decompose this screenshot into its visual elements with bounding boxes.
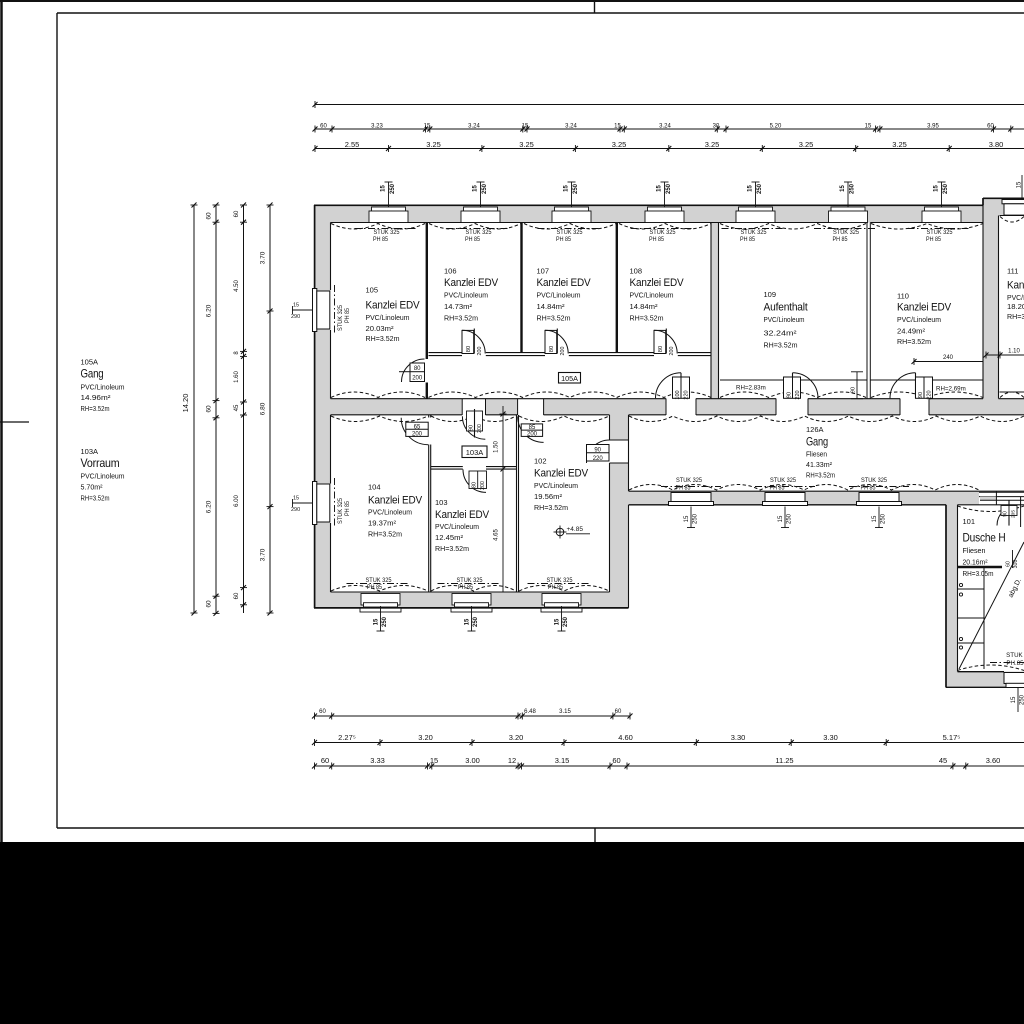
svg-text:15: 15 xyxy=(934,185,940,192)
svg-text:250: 250 xyxy=(787,513,793,524)
svg-text:220: 220 xyxy=(795,390,801,399)
svg-text:PVC/Linoleum: PVC/Linoleum xyxy=(897,315,941,324)
svg-text:20.16m²: 20.16m² xyxy=(963,558,988,567)
svg-text:14.84m²: 14.84m² xyxy=(537,302,566,311)
svg-text:3.25: 3.25 xyxy=(612,140,627,149)
svg-text:+4.85: +4.85 xyxy=(567,526,584,533)
svg-text:STUK 325: STUK 325 xyxy=(650,229,677,236)
svg-text:Gang: Gang xyxy=(81,367,104,381)
svg-text:Gang: Gang xyxy=(806,435,828,449)
svg-text:RH=3.52m: RH=3.52m xyxy=(366,334,400,343)
svg-text:250: 250 xyxy=(757,183,763,194)
svg-text:RH=3.52m: RH=3.52m xyxy=(435,544,469,553)
svg-text:RH=3.52m: RH=3.52m xyxy=(368,530,402,539)
svg-text:80: 80 xyxy=(414,366,421,372)
svg-text:60: 60 xyxy=(1006,561,1012,567)
svg-text:250: 250 xyxy=(1020,694,1024,705)
svg-text:STUK 325: STUK 325 xyxy=(557,229,584,236)
svg-text:1.10: 1.10 xyxy=(1008,349,1020,355)
svg-text:15: 15 xyxy=(374,618,380,625)
svg-text:250: 250 xyxy=(473,616,479,627)
svg-text:PH 85: PH 85 xyxy=(556,236,571,243)
svg-text:RH=3.52m: RH=3.52m xyxy=(1007,312,1024,321)
svg-text:290: 290 xyxy=(291,314,300,320)
svg-text:STUK 325: STUK 325 xyxy=(366,577,393,584)
svg-text:6.00: 6.00 xyxy=(234,495,240,507)
svg-text:PVC/Linoleum: PVC/Linoleum xyxy=(764,315,805,324)
svg-text:RH=3.52m: RH=3.52m xyxy=(897,337,931,346)
svg-text:STUK 325: STUK 325 xyxy=(833,229,860,236)
svg-text:15: 15 xyxy=(424,124,431,130)
svg-text:PH 85: PH 85 xyxy=(344,308,351,323)
svg-text:15: 15 xyxy=(293,303,299,309)
svg-text:6.48: 6.48 xyxy=(524,709,536,715)
svg-text:111: 111 xyxy=(1007,267,1018,276)
svg-text:60: 60 xyxy=(612,756,620,765)
svg-text:PH 85: PH 85 xyxy=(926,236,941,243)
svg-text:220: 220 xyxy=(927,390,933,399)
svg-text:1.60: 1.60 xyxy=(234,371,240,383)
svg-text:Kanzlei EDV: Kanzlei EDV xyxy=(1007,280,1024,292)
svg-text:Fliesen: Fliesen xyxy=(963,546,986,555)
svg-text:Vorraum: Vorraum xyxy=(81,456,120,470)
svg-text:109: 109 xyxy=(764,290,777,299)
svg-text:5.17⁵: 5.17⁵ xyxy=(943,733,961,742)
svg-text:RH=3.52m: RH=3.52m xyxy=(537,314,571,323)
svg-text:PH 85: PH 85 xyxy=(344,501,351,516)
svg-text:200: 200 xyxy=(477,424,483,433)
svg-text:Kanzlei EDV: Kanzlei EDV xyxy=(435,509,490,521)
svg-text:105A: 105A xyxy=(561,374,578,383)
svg-text:19.37m²: 19.37m² xyxy=(368,519,397,528)
svg-text:STUK 325: STUK 325 xyxy=(770,477,797,484)
svg-text:105A: 105A xyxy=(81,358,99,367)
svg-text:PVC/Linoleum: PVC/Linoleum xyxy=(366,313,410,322)
svg-text:PVC/Linoleum: PVC/Linoleum xyxy=(444,291,488,300)
svg-text:105: 105 xyxy=(366,286,379,295)
svg-text:3.23: 3.23 xyxy=(371,124,383,130)
svg-text:STUK 325: STUK 325 xyxy=(741,229,768,236)
svg-text:250: 250 xyxy=(693,513,699,524)
svg-text:PVC/Linoleum: PVC/Linoleum xyxy=(81,472,125,481)
svg-text:11.25: 11.25 xyxy=(775,756,793,765)
svg-text:110: 110 xyxy=(897,292,909,301)
svg-text:4.60: 4.60 xyxy=(618,733,633,742)
svg-text:15: 15 xyxy=(1017,181,1023,188)
svg-text:STUK 325: STUK 325 xyxy=(466,229,493,236)
svg-text:250: 250 xyxy=(943,183,949,194)
svg-text:Fliesen: Fliesen xyxy=(806,450,827,459)
svg-text:15: 15 xyxy=(1011,696,1017,703)
svg-text:PH 85: PH 85 xyxy=(465,236,480,243)
svg-text:60: 60 xyxy=(206,600,213,608)
svg-text:4.50: 4.50 xyxy=(234,280,240,292)
svg-text:15: 15 xyxy=(293,496,299,502)
svg-text:250: 250 xyxy=(666,183,672,194)
svg-text:205: 205 xyxy=(1011,510,1017,518)
svg-text:19.56m²: 19.56m² xyxy=(534,492,563,501)
svg-text:Dusche H: Dusche H xyxy=(963,531,1006,545)
svg-text:85: 85 xyxy=(529,425,536,431)
svg-text:3.70: 3.70 xyxy=(260,548,267,561)
svg-text:60: 60 xyxy=(321,756,329,765)
svg-text:60: 60 xyxy=(234,592,240,599)
svg-text:45: 45 xyxy=(234,404,240,411)
svg-text:6.80: 6.80 xyxy=(260,402,267,415)
svg-text:20.03m²: 20.03m² xyxy=(366,324,395,333)
svg-text:60: 60 xyxy=(206,212,213,220)
svg-text:PH 85: PH 85 xyxy=(367,584,382,591)
svg-text:3.30: 3.30 xyxy=(823,733,838,742)
svg-text:32.24m²: 32.24m² xyxy=(764,329,798,338)
svg-text:STUK 325: STUK 325 xyxy=(337,304,344,331)
svg-text:6.20: 6.20 xyxy=(206,304,213,317)
svg-text:15: 15 xyxy=(614,124,621,130)
svg-text:250: 250 xyxy=(881,513,887,524)
svg-text:Kanzlei EDV: Kanzlei EDV xyxy=(897,302,952,314)
svg-text:106: 106 xyxy=(444,267,457,276)
svg-text:RH=3.52m: RH=3.52m xyxy=(444,314,478,323)
svg-text:15: 15 xyxy=(748,185,754,192)
svg-text:240: 240 xyxy=(943,355,954,361)
svg-text:3.20: 3.20 xyxy=(418,733,433,742)
svg-text:PVC/Linoleum: PVC/Linoleum xyxy=(368,508,412,517)
svg-text:PVC/Linoleum: PVC/Linoleum xyxy=(630,291,674,300)
svg-text:250: 250 xyxy=(563,616,569,627)
svg-text:PVC/Linoleum: PVC/Linoleum xyxy=(435,522,479,531)
svg-text:Kanzlei EDV: Kanzlei EDV xyxy=(368,495,423,507)
svg-text:60: 60 xyxy=(234,210,240,217)
svg-text:24.49m²: 24.49m² xyxy=(897,327,926,336)
svg-text:60: 60 xyxy=(206,405,213,413)
svg-text:14.20: 14.20 xyxy=(181,394,190,413)
svg-text:3.25: 3.25 xyxy=(705,140,720,149)
svg-text:15: 15 xyxy=(564,185,570,192)
svg-text:103A: 103A xyxy=(466,448,484,457)
svg-text:101: 101 xyxy=(963,517,976,526)
svg-text:5.20: 5.20 xyxy=(770,124,782,130)
svg-text:2.55: 2.55 xyxy=(345,140,360,149)
svg-text:3.30: 3.30 xyxy=(731,733,746,742)
svg-text:4.65: 4.65 xyxy=(494,529,500,541)
svg-text:PH 85: PH 85 xyxy=(458,584,473,591)
svg-text:PVC/Linoleum: PVC/Linoleum xyxy=(537,291,581,300)
svg-text:60: 60 xyxy=(615,709,622,715)
svg-text:RH=2.69m: RH=2.69m xyxy=(936,386,966,393)
svg-text:45: 45 xyxy=(939,756,947,765)
svg-text:15: 15 xyxy=(522,124,529,130)
svg-text:PH 85: PH 85 xyxy=(770,485,785,492)
svg-text:15: 15 xyxy=(684,515,690,522)
svg-text:PVC/Linoleum: PVC/Linoleum xyxy=(81,383,125,392)
svg-text:STUK 325: STUK 325 xyxy=(547,577,574,584)
svg-text:3.24: 3.24 xyxy=(468,124,480,130)
svg-text:60: 60 xyxy=(987,124,994,130)
svg-text:2.27⁵: 2.27⁵ xyxy=(338,733,356,742)
svg-text:15: 15 xyxy=(657,185,663,192)
svg-text:PH 85: PH 85 xyxy=(373,236,388,243)
svg-text:3.15: 3.15 xyxy=(559,709,571,715)
svg-text:Aufenthalt: Aufenthalt xyxy=(764,302,808,314)
svg-text:200: 200 xyxy=(527,432,538,438)
svg-text:5.70m²: 5.70m² xyxy=(81,483,104,492)
svg-text:200: 200 xyxy=(669,347,675,356)
svg-text:STUK 325: STUK 325 xyxy=(337,497,344,524)
svg-text:RH=3.52m: RH=3.52m xyxy=(806,471,835,480)
svg-text:3.24: 3.24 xyxy=(565,124,577,130)
svg-text:PH 85: PH 85 xyxy=(861,485,876,492)
svg-text:STUK 325: STUK 325 xyxy=(457,577,484,584)
svg-text:STUK 325: STUK 325 xyxy=(374,229,401,236)
svg-text:STUK 325: STUK 325 xyxy=(676,477,703,484)
svg-text:PH 85: PH 85 xyxy=(740,236,755,243)
svg-text:90: 90 xyxy=(851,387,857,393)
svg-text:12: 12 xyxy=(508,756,516,765)
svg-text:300: 300 xyxy=(1013,560,1019,569)
svg-text:108: 108 xyxy=(630,267,643,276)
svg-text:41.33m²: 41.33m² xyxy=(806,460,833,469)
svg-text:Kanzlei EDV: Kanzlei EDV xyxy=(444,277,499,289)
svg-text:220: 220 xyxy=(684,390,690,399)
svg-text:250: 250 xyxy=(390,183,396,194)
svg-text:220: 220 xyxy=(593,456,604,462)
svg-text:PH.85: PH.85 xyxy=(1006,660,1024,667)
svg-text:250: 250 xyxy=(482,183,488,194)
svg-text:90: 90 xyxy=(594,448,601,454)
svg-text:103A: 103A xyxy=(81,447,99,456)
svg-text:126A: 126A xyxy=(806,425,824,434)
svg-text:3.70: 3.70 xyxy=(260,251,267,264)
svg-text:15: 15 xyxy=(465,618,471,625)
svg-text:3.80: 3.80 xyxy=(989,140,1004,149)
svg-text:15: 15 xyxy=(872,515,878,522)
svg-text:80: 80 xyxy=(472,482,478,488)
svg-text:PVC/Linoleum: PVC/Linoleum xyxy=(534,481,578,490)
svg-text:15: 15 xyxy=(555,618,561,625)
svg-text:Kanzlei EDV: Kanzlei EDV xyxy=(537,277,592,289)
svg-text:3.15: 3.15 xyxy=(555,756,570,765)
svg-text:3.24: 3.24 xyxy=(659,124,671,130)
svg-text:PH 85: PH 85 xyxy=(676,485,691,492)
svg-text:65: 65 xyxy=(414,424,421,430)
svg-text:STUK 325: STUK 325 xyxy=(927,229,954,236)
svg-text:200: 200 xyxy=(412,376,423,382)
svg-text:18.20m²: 18.20m² xyxy=(1007,302,1024,311)
svg-text:12.45m²: 12.45m² xyxy=(435,533,464,542)
svg-text:15: 15 xyxy=(840,185,846,192)
svg-text:250: 250 xyxy=(573,183,579,194)
svg-text:RH=3.52m: RH=3.52m xyxy=(81,494,110,503)
svg-text:200: 200 xyxy=(560,347,566,356)
svg-text:RH=3.52m: RH=3.52m xyxy=(81,404,110,413)
svg-text:90: 90 xyxy=(787,392,793,398)
svg-text:290: 290 xyxy=(291,507,300,513)
svg-text:250: 250 xyxy=(382,616,388,627)
svg-text:107: 107 xyxy=(537,267,550,276)
svg-text:3.20: 3.20 xyxy=(509,733,524,742)
svg-text:104: 104 xyxy=(368,483,381,492)
svg-text:15: 15 xyxy=(473,185,479,192)
svg-text:1.50: 1.50 xyxy=(494,441,500,453)
svg-text:80: 80 xyxy=(549,346,555,352)
svg-text:PH 85: PH 85 xyxy=(833,236,848,243)
svg-text:STUK 3: STUK 3 xyxy=(1006,652,1024,659)
svg-text:3.25: 3.25 xyxy=(892,140,907,149)
svg-text:103: 103 xyxy=(435,498,448,507)
svg-text:Kanzlei EDV: Kanzlei EDV xyxy=(366,300,421,312)
svg-text:30: 30 xyxy=(713,124,720,130)
svg-text:14.84m²: 14.84m² xyxy=(630,302,659,311)
svg-text:60: 60 xyxy=(319,709,326,715)
svg-text:6.20: 6.20 xyxy=(206,500,213,513)
svg-text:100: 100 xyxy=(675,390,681,399)
svg-text:Kanzlei EDV: Kanzlei EDV xyxy=(630,277,685,289)
svg-text:15: 15 xyxy=(430,756,438,765)
svg-text:14.96m²: 14.96m² xyxy=(81,393,112,402)
svg-text:Kanzlei EDV: Kanzlei EDV xyxy=(534,468,589,480)
svg-text:15: 15 xyxy=(381,185,387,192)
svg-text:3.25: 3.25 xyxy=(426,140,441,149)
svg-text:15: 15 xyxy=(778,515,784,522)
svg-text:3.00: 3.00 xyxy=(465,756,480,765)
svg-text:250: 250 xyxy=(850,183,856,194)
svg-text:3.33: 3.33 xyxy=(370,756,385,765)
svg-text:RH=3.52m: RH=3.52m xyxy=(534,503,568,512)
svg-text:14.73m²: 14.73m² xyxy=(444,302,473,311)
svg-text:200: 200 xyxy=(480,481,486,490)
svg-text:PH 85: PH 85 xyxy=(649,236,664,243)
svg-text:80: 80 xyxy=(466,346,472,352)
svg-text:102: 102 xyxy=(534,457,547,466)
svg-text:15: 15 xyxy=(865,124,872,130)
svg-text:80: 80 xyxy=(658,346,664,352)
svg-text:3.95: 3.95 xyxy=(927,124,939,130)
svg-text:3.25: 3.25 xyxy=(799,140,814,149)
svg-text:90: 90 xyxy=(1003,511,1009,517)
svg-text:200: 200 xyxy=(477,347,483,356)
svg-text:PVC/Linoleum: PVC/Linoleum xyxy=(1007,293,1024,302)
svg-text:RH=3.05m: RH=3.05m xyxy=(963,569,994,578)
svg-text:RH=3.52m: RH=3.52m xyxy=(630,314,664,323)
svg-text:3.25: 3.25 xyxy=(519,140,534,149)
svg-text:3.60: 3.60 xyxy=(986,756,1001,765)
svg-text:PH 85: PH 85 xyxy=(548,584,563,591)
svg-text:RH=2.83m: RH=2.83m xyxy=(736,385,766,392)
svg-text:RH=3.52m: RH=3.52m xyxy=(764,341,798,350)
svg-text:200: 200 xyxy=(412,431,423,437)
svg-text:90: 90 xyxy=(918,392,924,398)
svg-text:60: 60 xyxy=(320,124,327,130)
svg-text:90: 90 xyxy=(469,425,475,431)
svg-text:STUK 325: STUK 325 xyxy=(861,477,888,484)
